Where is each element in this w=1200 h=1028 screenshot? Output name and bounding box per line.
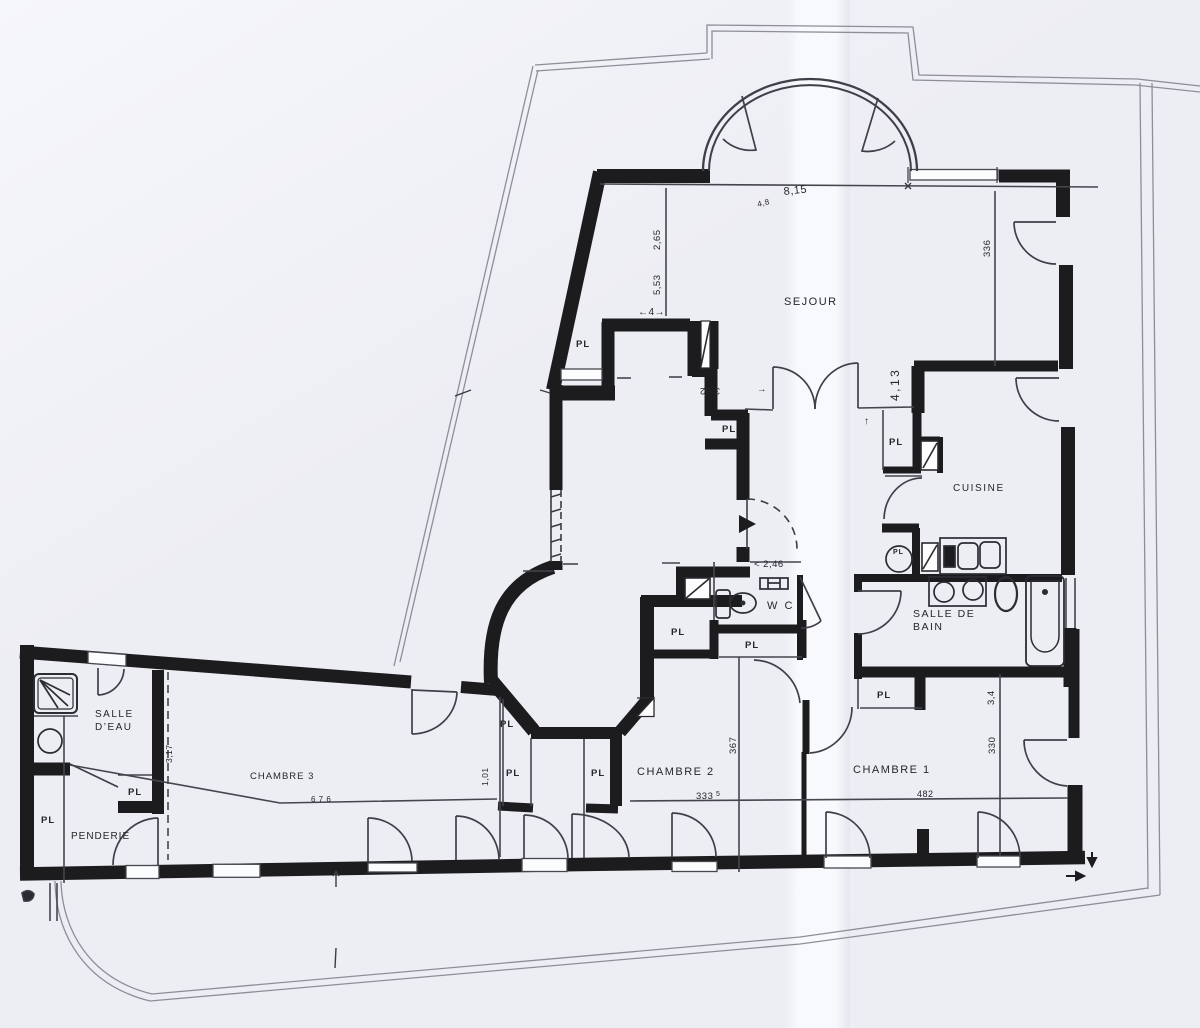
svg-text:4,13: 4,13 bbox=[888, 368, 902, 401]
svg-text:5: 5 bbox=[716, 791, 720, 798]
svg-text:< 2,46: < 2,46 bbox=[754, 559, 784, 570]
svg-text:5,53: 5,53 bbox=[652, 275, 663, 296]
svg-text:PL: PL bbox=[128, 787, 142, 798]
svg-text:8,15: 8,15 bbox=[783, 184, 808, 198]
svg-text:367: 367 bbox=[728, 737, 739, 754]
svg-text:←4→: ←4→ bbox=[638, 307, 665, 318]
svg-text:3,17: 3,17 bbox=[164, 744, 174, 763]
svg-text:CHAMBRE 1: CHAMBRE 1 bbox=[853, 764, 931, 776]
svg-text:PL: PL bbox=[591, 768, 605, 779]
svg-text:PL: PL bbox=[889, 437, 903, 448]
svg-text:2,65: 2,65 bbox=[652, 230, 663, 251]
svg-text:PL: PL bbox=[500, 719, 514, 730]
svg-text:SEJOUR: SEJOUR bbox=[784, 296, 838, 308]
svg-text:PL: PL bbox=[506, 768, 520, 779]
svg-text:1,01: 1,01 bbox=[480, 767, 490, 786]
svg-text:333: 333 bbox=[696, 791, 713, 802]
svg-text:PL: PL bbox=[671, 627, 685, 638]
svg-text:PL: PL bbox=[41, 815, 55, 826]
svg-text:482: 482 bbox=[917, 789, 934, 799]
svg-text:6 7 6: 6 7 6 bbox=[311, 795, 331, 804]
svg-text:BAIN: BAIN bbox=[913, 621, 944, 633]
svg-text:PL: PL bbox=[745, 640, 759, 651]
svg-text:PL: PL bbox=[877, 690, 891, 701]
svg-text:PL: PL bbox=[722, 424, 736, 435]
svg-text:CUISINE: CUISINE bbox=[953, 483, 1005, 494]
svg-text:330: 330 bbox=[987, 737, 998, 754]
svg-text:PL: PL bbox=[576, 339, 590, 350]
svg-text:→: → bbox=[757, 384, 767, 395]
svg-text:D’EAU: D’EAU bbox=[95, 722, 133, 733]
svg-text:CHAMBRE 2: CHAMBRE 2 bbox=[637, 766, 715, 778]
svg-text:SALLE: SALLE bbox=[95, 709, 134, 720]
svg-text:3,62: 3,62 bbox=[700, 385, 721, 396]
svg-text:PENDERIE: PENDERIE bbox=[71, 831, 130, 842]
svg-text:W C: W C bbox=[767, 600, 794, 612]
svg-text:3,4: 3,4 bbox=[986, 690, 997, 705]
svg-text:↑: ↑ bbox=[864, 416, 870, 427]
svg-text:PL: PL bbox=[893, 549, 904, 556]
svg-text:CHAMBRE 3: CHAMBRE 3 bbox=[250, 771, 314, 782]
svg-text:336: 336 bbox=[982, 240, 993, 257]
svg-text:SALLE DE: SALLE DE bbox=[913, 608, 975, 620]
